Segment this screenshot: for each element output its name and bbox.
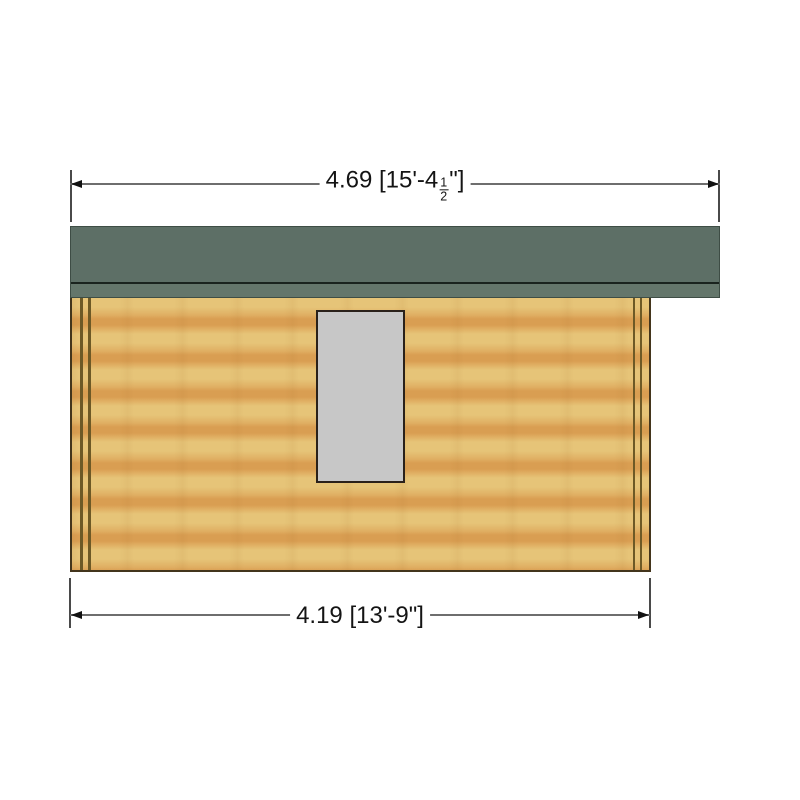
top-dimension-text: 4.69 [15'-4 [326,166,439,193]
dimension-arrow-right-icon [708,180,719,188]
roof-fascia [71,284,719,297]
top-dimension-label: 4.69 [15'-412"] [320,167,471,202]
top-extension-line-right [718,170,720,222]
dimension-arrow-left-icon [71,611,82,619]
corner-trim-right-inner [633,298,636,570]
drawing-canvas: 4.69 [15'-412"] 4.19 [13'-9"] [0,0,800,800]
half-inch-fraction: 12 [439,177,448,203]
fraction-numerator: 1 [439,177,448,190]
bottom-dimension-label: 4.19 [13'-9"] [290,603,430,629]
top-extension-line-left [70,170,72,222]
dimension-arrow-right-icon [638,611,649,619]
roof-panel [71,227,719,282]
bottom-extension-line-left [69,578,71,628]
corner-trim-right-outer [640,298,643,570]
roof [70,226,720,298]
fraction-denominator: 2 [439,190,448,202]
window [316,310,405,483]
top-dimension-suffix: "] [449,166,464,193]
dimension-arrow-left-icon [71,180,82,188]
corner-trim-left-outer [80,298,83,570]
cabin-wall [70,298,651,572]
bottom-extension-line-right [649,578,651,628]
corner-trim-left-inner [88,298,91,570]
bottom-dimension-text: 4.19 [13'-9"] [296,602,424,629]
